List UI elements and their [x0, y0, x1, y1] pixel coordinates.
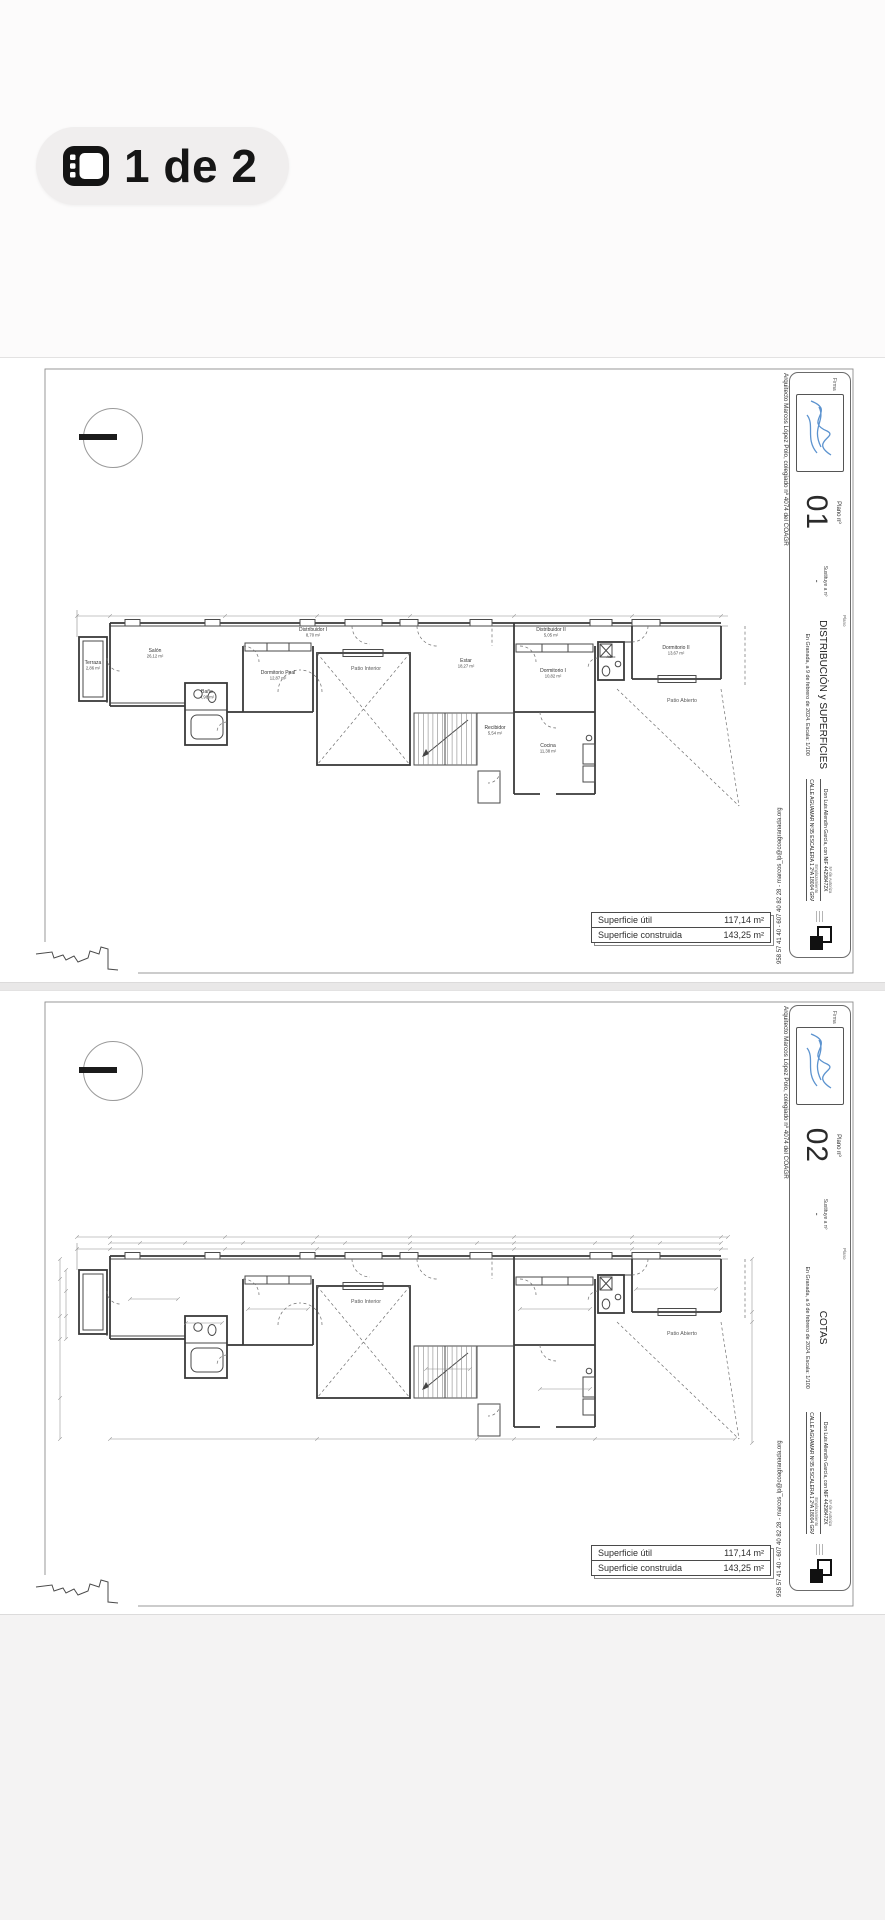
orientation-bar [79, 434, 117, 440]
plano-label: Plano [842, 1248, 847, 1260]
architect-credit: Arquitecto Marcos López Polo, colegiado … [780, 1006, 789, 1261]
room-label-patio-abierto: Patio Abierto [667, 1331, 697, 1337]
room-label-dist2: Distribuidor II5,05 m² [536, 627, 565, 638]
floorplan-pages-icon [62, 145, 110, 187]
room-label-salon: Salón26,12 m² [147, 648, 164, 659]
logo-fine-print [815, 911, 826, 922]
signature-box [796, 1027, 844, 1105]
substitute-label: Sustituye a nº [822, 1199, 828, 1230]
plano-no-label: Plano nº [835, 1134, 841, 1157]
summary-value: 117,14 m² [724, 915, 764, 925]
orientation-symbol [83, 408, 143, 468]
floorplan-counter-badge[interactable]: 1 de 2 [36, 127, 289, 205]
summary-label: Superficie útil [598, 915, 652, 925]
area-summary-table: Superficie útil 117,14 m² Superficie con… [591, 1545, 771, 1576]
client-line: Don Luis Allendín García, con NIF 442984… [820, 779, 828, 901]
summary-label: Superficie construida [598, 930, 682, 940]
substitute-value: - [812, 580, 822, 583]
area-summary-table: Superficie útil 117,14 m² Superficie con… [591, 912, 771, 943]
orientation-symbol [83, 1041, 143, 1101]
room-label-dorm1: Dormitorio I10,82 m² [540, 668, 566, 679]
background-lower [0, 1613, 885, 1920]
summary-value: 117,14 m² [724, 1548, 764, 1558]
signature-icon [797, 1028, 843, 1104]
table-row: Superficie útil 117,14 m² [592, 1546, 770, 1560]
substitute-label: Sustituye a nº [822, 566, 828, 597]
signature-icon [797, 395, 843, 471]
room-label-cocina: Cocina11,38 m² [540, 743, 557, 754]
substitute-value: - [812, 1213, 822, 1216]
location-label: Emplazamiento [814, 1497, 819, 1526]
room-label-recibidor: Recibidor5,54 m² [484, 725, 505, 736]
title-block: Firma Plano nº 01 Sustituye a nº - Plano… [789, 372, 851, 958]
photo-gallery-screen: 1 de 2 Patio InteriorPatio AbiertoTerraz… [0, 0, 885, 1920]
summary-label: Superficie construida [598, 1563, 682, 1573]
coagr-logo [807, 925, 833, 953]
firma-label: Firma [831, 1011, 837, 1024]
sheet-title: COTAS [816, 1311, 828, 1345]
location-label: Emplazamiento [814, 864, 819, 893]
page-counter-label: 1 de 2 [124, 139, 257, 193]
room-label-dist1: Distribuidor I8,70 m² [299, 627, 327, 638]
table-row: Superficie construida 143,25 m² [592, 927, 770, 942]
location-line: CALLE AGUAMAR Nº35 ESCALERA 1 2ºA 18004 … [806, 779, 814, 901]
room-label-dorm_ppal: Dormitorio Ppal12,87 m² [261, 670, 295, 681]
firma-label: Firma [831, 378, 837, 391]
room-label-patio-interior: Patio Interior [351, 666, 381, 672]
room-label-terraza: Terraza2,86 m² [85, 660, 102, 671]
client-field-label: Nº de Autoriza [828, 867, 833, 894]
architect-credit: Arquitecto Marcos López Polo, colegiado … [780, 373, 789, 628]
sheet-number: 02 [799, 1128, 833, 1163]
orientation-bar [79, 1067, 117, 1073]
room-label-bano: Baño4,98 m² [200, 689, 215, 700]
plan-sheet-1[interactable]: Patio InteriorPatio AbiertoTerraza2,86 m… [0, 357, 885, 983]
title-block: Firma Plano nº 02 Sustituye a nº - Plano… [789, 1005, 851, 1591]
room-label-dorm2: Dormitorio II13,67 m² [662, 645, 689, 656]
date-scale-line: En Granada, a 9 de febrero de 2024. Esca… [804, 633, 810, 755]
summary-value: 143,25 m² [723, 1563, 764, 1573]
client-line: Don Luis Allendín García, con NIF 442984… [820, 1412, 828, 1534]
location-line: CALLE AGUAMAR Nº35 ESCALERA 1 2ºA 18004 … [806, 1412, 814, 1534]
logo-fine-print [815, 1544, 826, 1555]
room-label-patio-abierto: Patio Abierto [667, 698, 697, 704]
table-row: Superficie útil 117,14 m² [592, 913, 770, 927]
sheet-title: DISTRIBUCIÓN y SUPERFICIES [816, 620, 828, 769]
plano-label: Plano [842, 615, 847, 627]
date-scale-line: En Granada, a 9 de febrero de 2024. Esca… [804, 1266, 810, 1388]
signature-box [796, 394, 844, 472]
room-label-aseo: Aseo [607, 655, 616, 659]
plano-no-label: Plano nº [835, 501, 841, 524]
coagr-logo [807, 1558, 833, 1586]
client-field-label: Nº de Autoriza [828, 1500, 833, 1527]
table-row: Superficie construida 143,25 m² [592, 1560, 770, 1575]
summary-value: 143,25 m² [723, 930, 764, 940]
contact-line: 958 57 41 40 - 607 40 82 28 - marcos_lp@… [777, 1411, 786, 1597]
summary-label: Superficie útil [598, 1548, 652, 1558]
room-label-estar: Estar18,27 m² [458, 658, 475, 669]
sheet-number: 01 [799, 495, 833, 530]
plan-sheet-2[interactable]: Patio InteriorPatio Abierto Firma Plano … [0, 990, 885, 1615]
contact-line: 958 57 41 40 - 607 40 82 28 - marcos_lp@… [777, 778, 786, 964]
room-label-patio-interior: Patio Interior [351, 1299, 381, 1305]
